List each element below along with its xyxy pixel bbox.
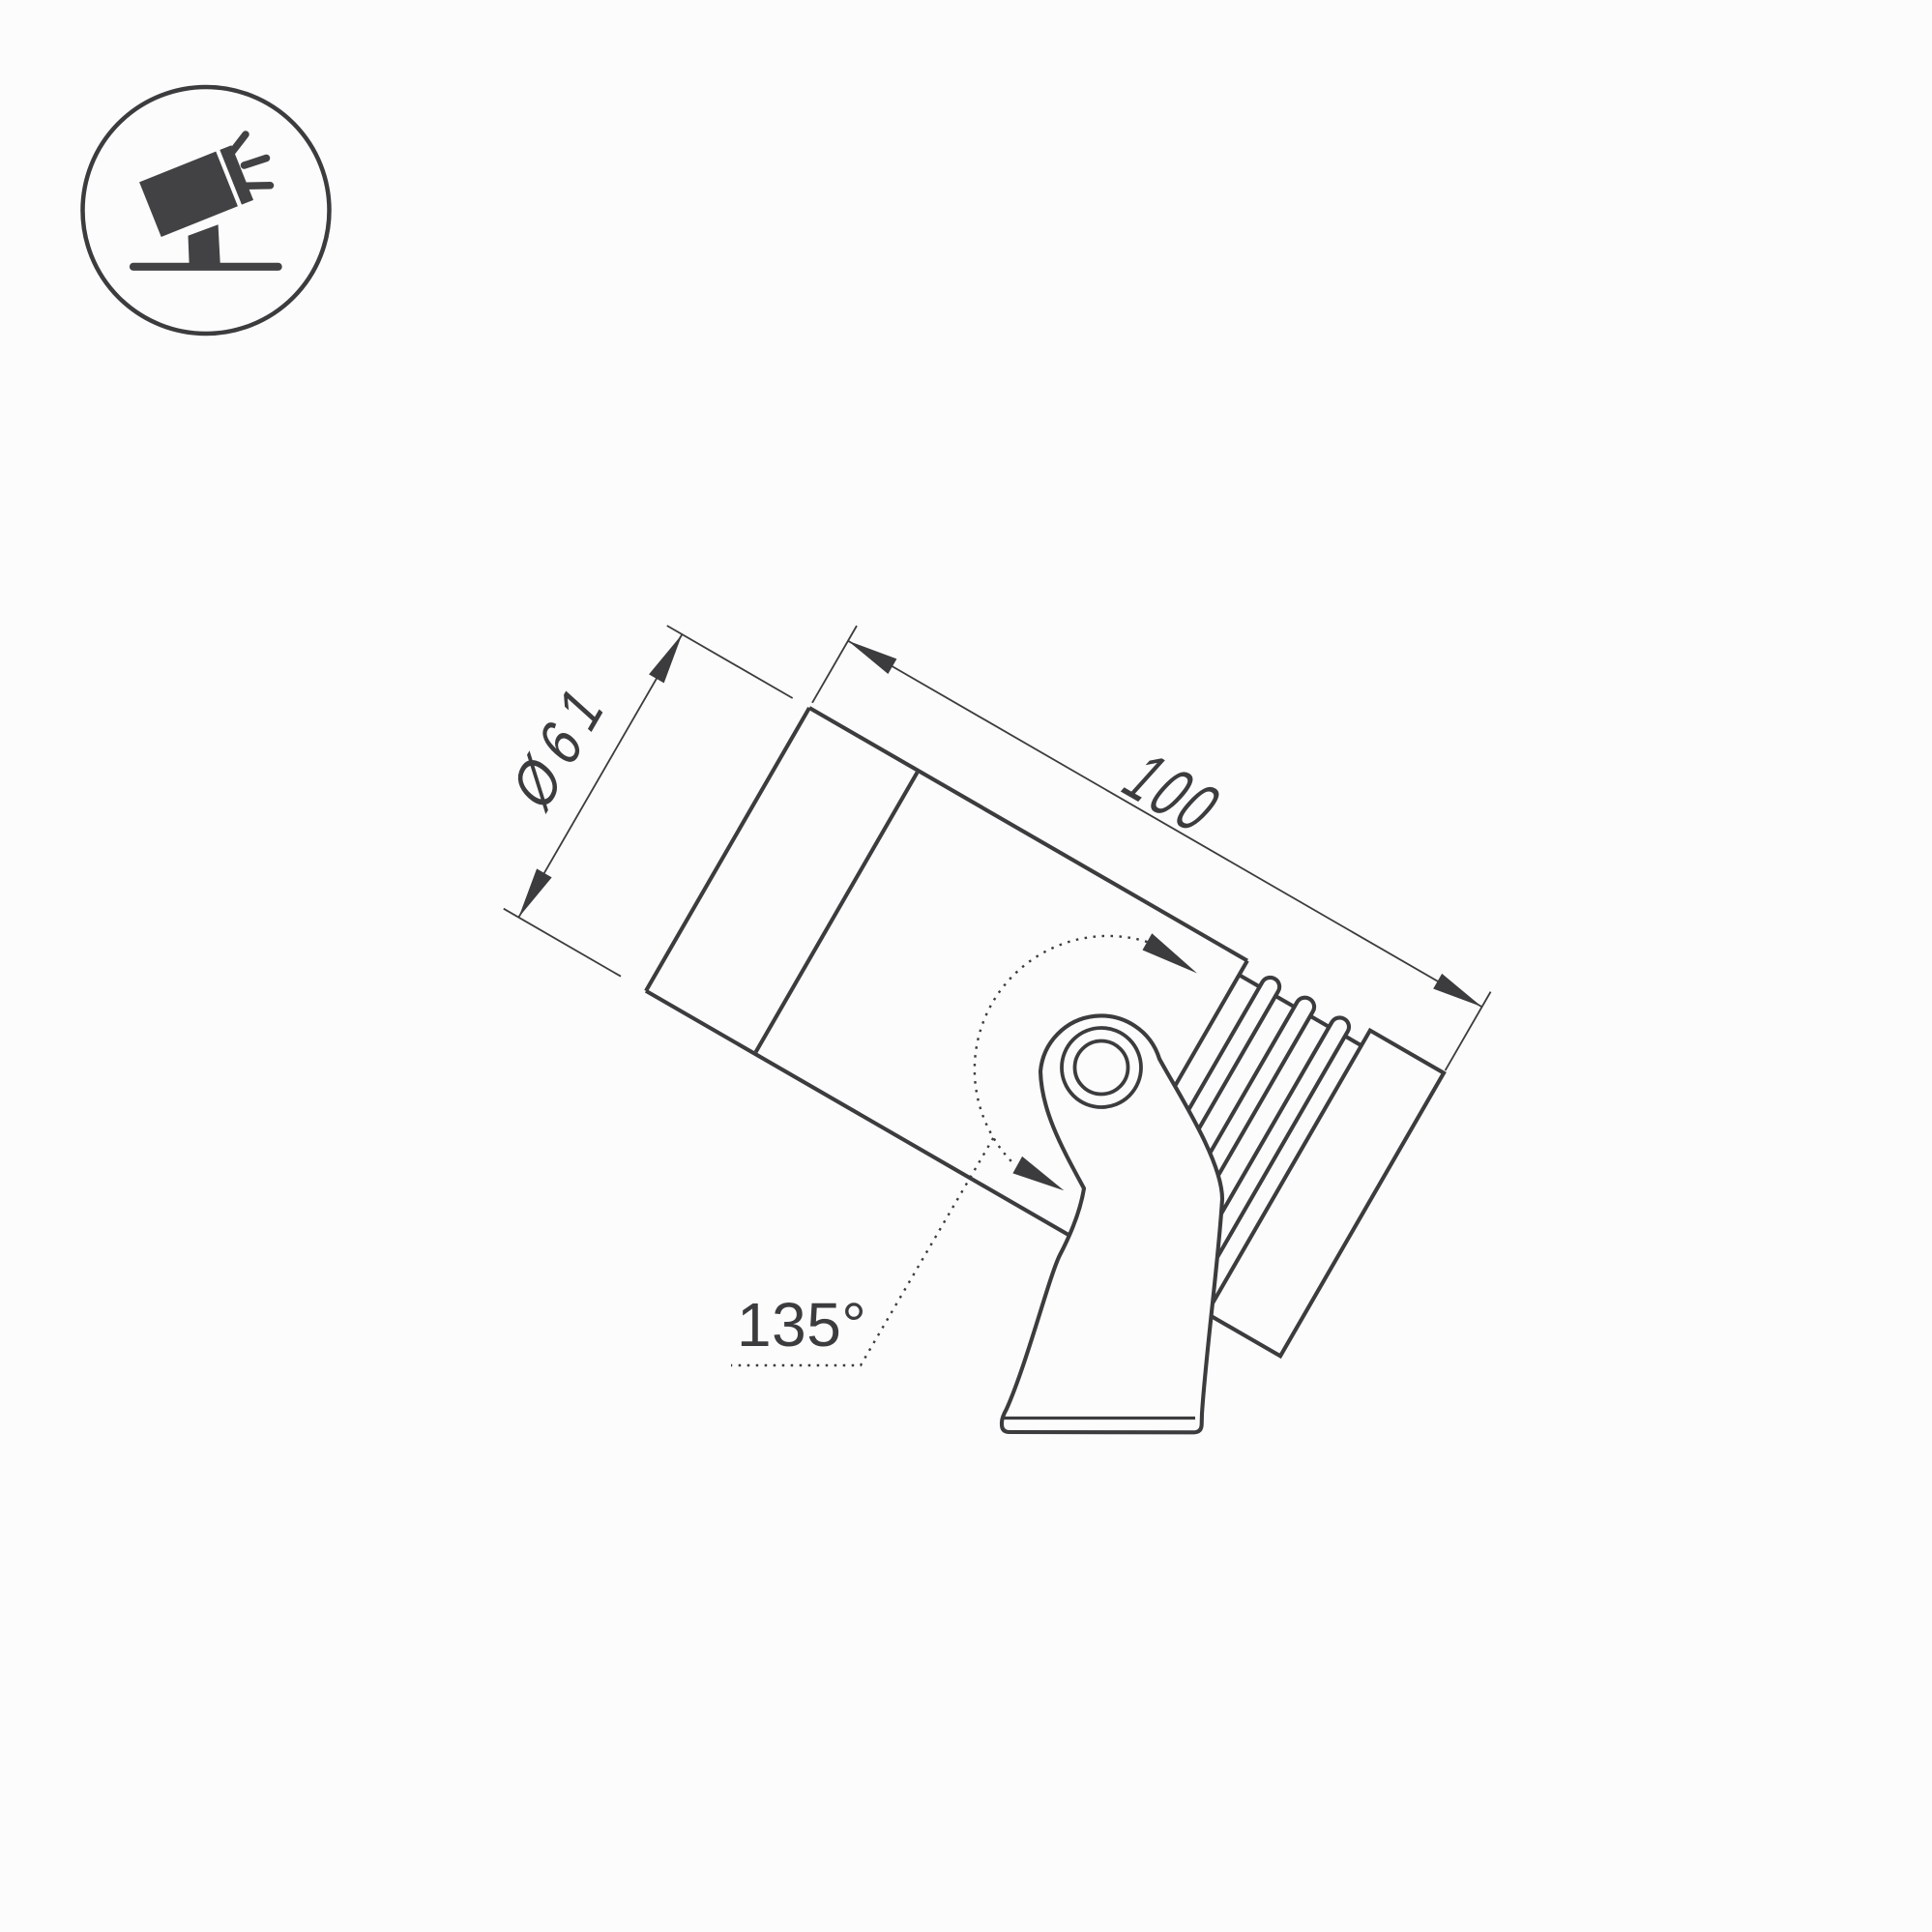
svg-text:100: 100 — [1107, 741, 1240, 846]
svg-text:Ø61: Ø61 — [502, 663, 620, 824]
svg-text:135°: 135° — [737, 1290, 866, 1360]
